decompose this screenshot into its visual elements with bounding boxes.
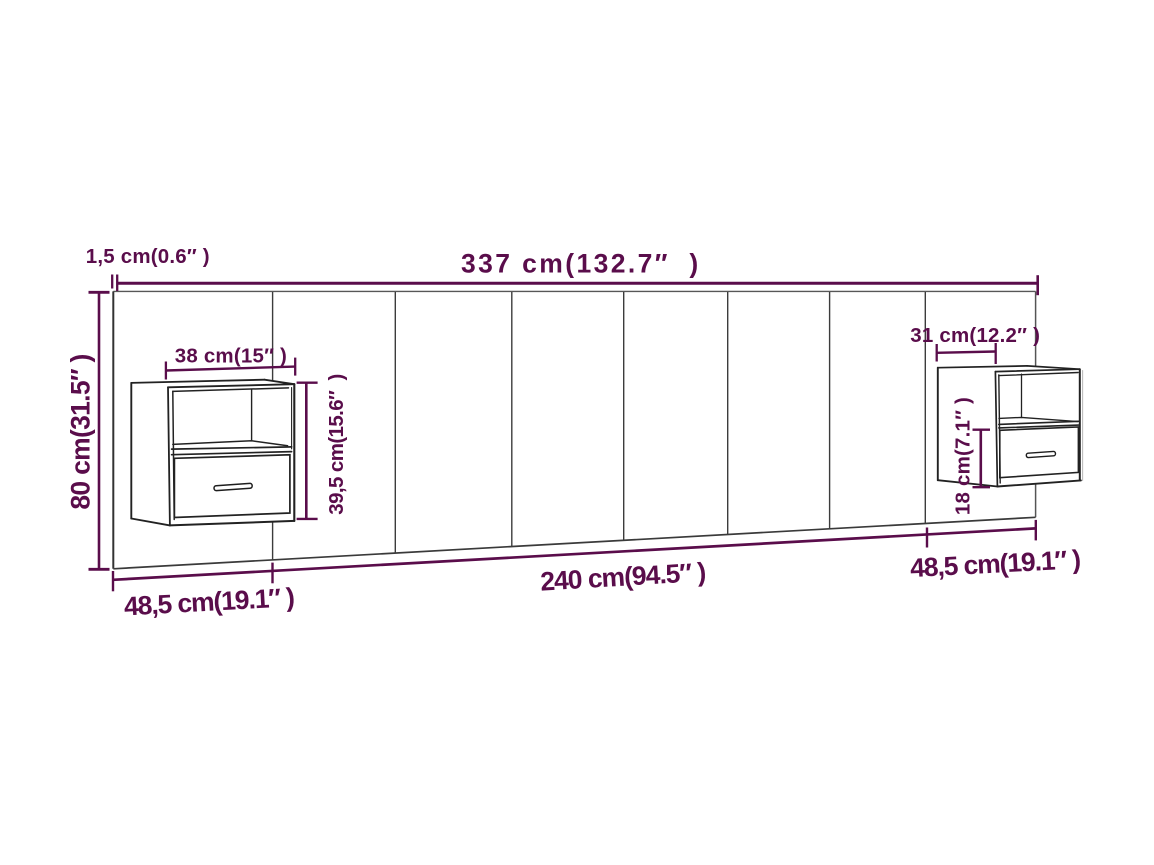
svg-text:31 cm(12.2″ ): 31 cm(12.2″ )	[910, 324, 1040, 347]
svg-text:38 cm(15″ ): 38 cm(15″ )	[175, 345, 287, 368]
svg-text:39,5 cm(15.6″ ): 39,5 cm(15.6″ )	[325, 374, 348, 514]
svg-text:1,5 cm(0.6″ ): 1,5 cm(0.6″ )	[86, 245, 210, 268]
svg-text:240 cm(94.5″ ): 240 cm(94.5″ )	[539, 557, 706, 597]
svg-text:337 cm(132.7″ ): 337 cm(132.7″ )	[461, 249, 701, 279]
svg-text:48,5 cm(19.1″ ): 48,5 cm(19.1″ )	[123, 582, 295, 621]
svg-text:18 cm(7.1″ ): 18 cm(7.1″ )	[952, 397, 975, 515]
svg-text:48,5 cm(19.1″ ): 48,5 cm(19.1″ )	[909, 544, 1081, 583]
svg-text:80 cm(31.5″ ): 80 cm(31.5″ )	[66, 354, 96, 509]
